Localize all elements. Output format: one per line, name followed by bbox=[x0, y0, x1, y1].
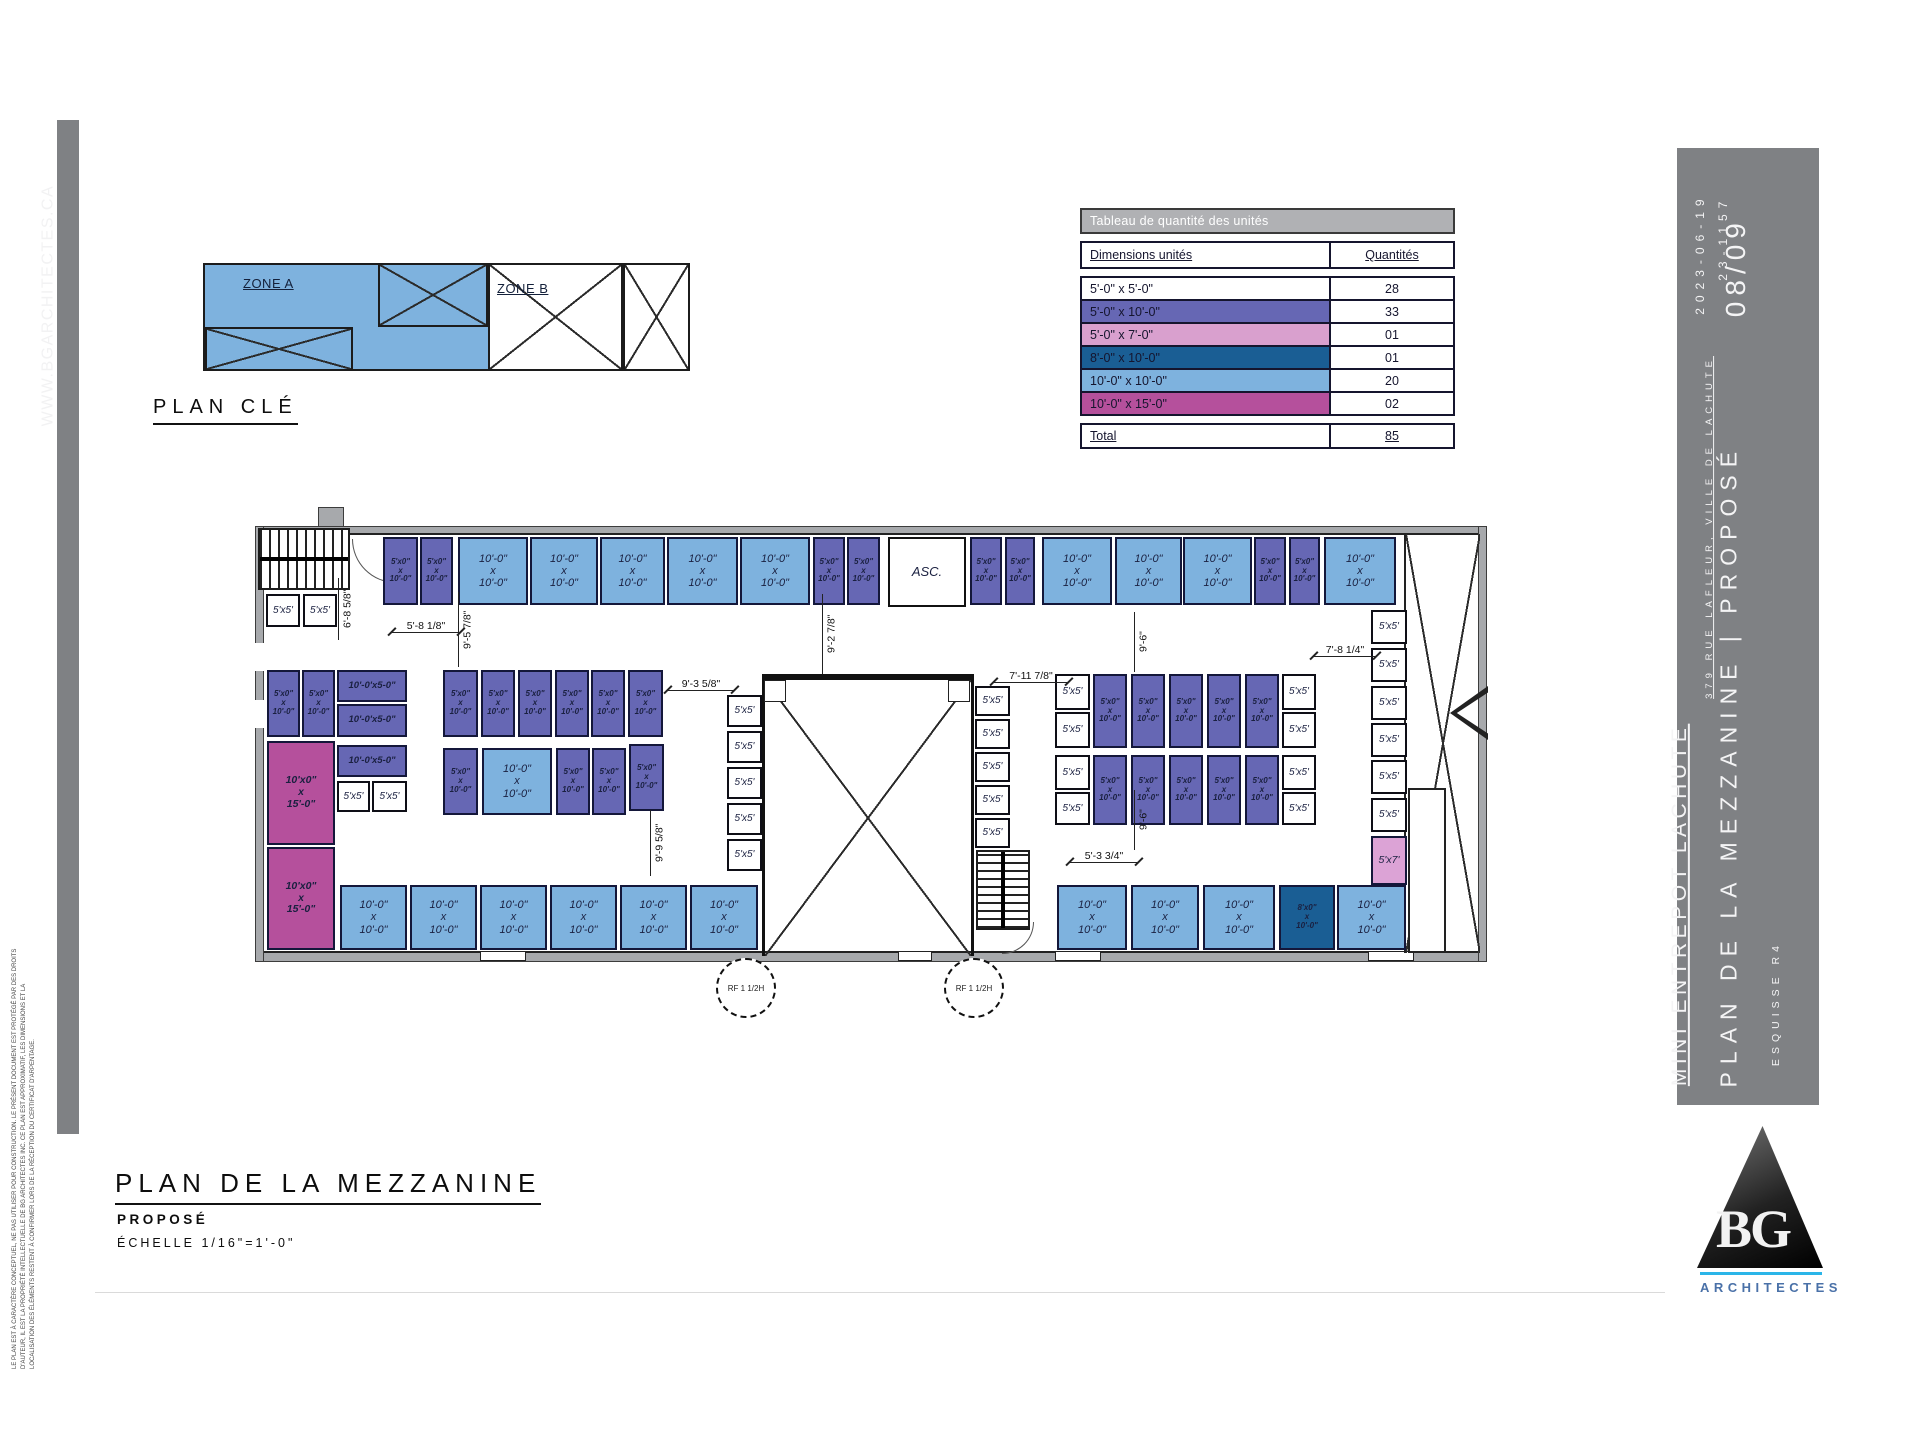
unit-5x5: 5'x5' bbox=[727, 695, 762, 727]
shaft-crossed-box bbox=[1408, 788, 1446, 953]
unit-10x10: 10'-0"x10'-0" bbox=[1183, 537, 1252, 605]
keyplan-crossed-area bbox=[623, 263, 690, 371]
unit-5x10: 5'x0"x10'-0" bbox=[443, 748, 478, 815]
fire-rating-tag: RF 1 1/2H bbox=[944, 958, 1004, 1018]
unit-10x10: 10'-0"x10'-0" bbox=[340, 885, 407, 950]
unit-8x10: 8'x0"x10'-0" bbox=[1279, 885, 1335, 950]
logo-rule bbox=[1700, 1272, 1822, 1275]
unit-5x10: 5'x0"x10'-0" bbox=[1169, 755, 1203, 825]
unit-5x10: 5'x0"x10'-0" bbox=[591, 670, 625, 737]
unit-5x5: 5'x5' bbox=[1371, 723, 1407, 757]
elevator-room: ASC. bbox=[888, 537, 966, 607]
unit-5x10: 5'x0"x10'-0" bbox=[1289, 537, 1320, 605]
table-row: 10'-0" x 10'-0"20 bbox=[1081, 369, 1454, 392]
unit-5x10: 5'x0"x10'-0" bbox=[1207, 755, 1241, 825]
table-row: 5'-0" x 5'-0"28 bbox=[1081, 277, 1454, 300]
dimension-label: 9'-5 7/8" bbox=[458, 592, 476, 667]
keyplan-title: PLAN CLÉ bbox=[153, 396, 298, 425]
disclaimer-line: LOCALISATION DES ÉLÉMENTS RESTENT À CONF… bbox=[29, 949, 38, 1369]
open-void-crossed-zone bbox=[762, 674, 974, 956]
sheet-title: PLAN DE LA MEZZANINE | PROPOSÉ bbox=[1716, 444, 1742, 1088]
copyright-disclaimer: LE PLAN EST À CARACTÈRE CONCEPTUEL, NE P… bbox=[11, 949, 38, 1369]
unit-5x10: 5'x0"x10'-0" bbox=[629, 744, 664, 811]
unit-10x10: 10'-0"x10'-0" bbox=[480, 885, 547, 950]
dimension-label: 5'-8 1/8" bbox=[392, 616, 460, 633]
unit-5x5: 5'x5' bbox=[1055, 755, 1090, 790]
unit-5x10: 5'x0"x10'-0" bbox=[556, 748, 590, 815]
table-row: 10'-0" x 15'-0"02 bbox=[1081, 392, 1454, 415]
unit-5x10: 10'-0'x5-0" bbox=[337, 704, 407, 737]
unit-5x10: 5'x0"x10'-0" bbox=[383, 537, 418, 605]
staircase-center bbox=[976, 850, 1030, 930]
table-total: Total 85 bbox=[1080, 423, 1455, 449]
door-opening bbox=[254, 643, 265, 671]
wall-top bbox=[255, 526, 1487, 535]
unit-5x10: 10'-0'x5-0" bbox=[337, 745, 407, 777]
unit-5x5: 5'x5' bbox=[1282, 674, 1316, 710]
column-crossed-box bbox=[948, 680, 970, 702]
unit-5x10: 5'x0"x10'-0" bbox=[1131, 674, 1165, 748]
zone-b-label: ZONE B bbox=[497, 281, 548, 296]
column-crossed-box bbox=[764, 680, 786, 702]
table-rows: 5'-0" x 5'-0"285'-0" x 10'-0"335'-0" x 7… bbox=[1080, 276, 1455, 416]
unit-5x5: 5'x5' bbox=[266, 594, 300, 627]
unit-5x5: 5'x5' bbox=[1055, 712, 1090, 748]
project-address: 379 RUE LAFLEUR, VILLE DE LACHUTE bbox=[1705, 356, 1716, 699]
unit-5x5: 5'x5' bbox=[975, 752, 1010, 782]
total-label: Total bbox=[1090, 429, 1116, 443]
unit-5x5: 5'x5' bbox=[1282, 755, 1316, 790]
unit-10x10: 10'-0"x10'-0" bbox=[620, 885, 687, 950]
unit-5x5: 5'x5' bbox=[727, 767, 762, 799]
unit-5x5: 5'x5' bbox=[372, 781, 407, 812]
unit-10x10: 10'-0"x10'-0" bbox=[1115, 537, 1182, 605]
project-name: MINI ENTREPOT LACHUTE bbox=[1668, 724, 1692, 1086]
unit-5x10: 5'x0"x10'-0" bbox=[1245, 674, 1279, 748]
dimension-label: 7'-8 1/4" bbox=[1314, 640, 1376, 657]
wall-left bbox=[255, 526, 264, 962]
issue-date: 2023-06-19 bbox=[1694, 193, 1708, 314]
unit-5x10: 10'-0'x5-0" bbox=[337, 670, 407, 702]
unit-5x5: 5'x5' bbox=[1282, 792, 1316, 825]
unit-5x5: 5'x5' bbox=[975, 686, 1010, 716]
disclaimer-line: D'AUTEUR, IL EST LA PROPRIÉTÉ INTELLECTU… bbox=[20, 949, 29, 1369]
unit-5x10: 5'x0"x10'-0" bbox=[555, 670, 589, 737]
unit-5x10: 5'x0"x10'-0" bbox=[443, 670, 478, 737]
left-sidebar-strip bbox=[57, 120, 79, 1134]
unit-10x10: 10'-0"x10'-0" bbox=[1337, 885, 1406, 950]
unit-10x10: 10'-0"x10'-0" bbox=[1042, 537, 1112, 605]
unit-5x10: 5'x0"x10'-0" bbox=[1245, 755, 1279, 825]
unit-5x10: 5'x0"x10'-0" bbox=[518, 670, 552, 737]
website-url: WWW.BGARCHITECTES.CA bbox=[40, 185, 58, 427]
unit-5x10: 5'x0"x10'-0" bbox=[420, 537, 453, 605]
unit-5x5: 5'x5' bbox=[727, 839, 762, 871]
total-value: 85 bbox=[1385, 429, 1399, 443]
unit-10x10: 10'-0"x10'-0" bbox=[1324, 537, 1396, 605]
unit-5x10: 5'x0"x10'-0" bbox=[1093, 674, 1127, 748]
unit-10x10: 10'-0"x10'-0" bbox=[690, 885, 758, 950]
sheet-title-text: PLAN DE LA MEZZANINE bbox=[1716, 656, 1742, 1087]
unit-10x10: 10'-0"x10'-0" bbox=[600, 537, 665, 605]
keyplan-crossed-area bbox=[488, 263, 623, 371]
logo-initials: BG bbox=[1716, 1198, 1790, 1260]
unit-10x10: 10'-0"x10'-0" bbox=[530, 537, 598, 605]
unit-5x10: 5'x0"x10'-0" bbox=[267, 670, 300, 737]
column-header-quantities: Quantités bbox=[1365, 248, 1419, 262]
unit-5x10: 5'x0"x10'-0" bbox=[628, 670, 663, 737]
keyplan-crossed-area bbox=[378, 263, 488, 327]
drawing-title: PLAN DE LA MEZZANINE bbox=[115, 1168, 541, 1205]
unit-10x10: 10'-0"x10'-0" bbox=[740, 537, 810, 605]
unit-5x5: 5'x5' bbox=[1371, 798, 1407, 832]
separator: | bbox=[1716, 628, 1742, 642]
door-arc bbox=[1002, 922, 1034, 954]
door-opening bbox=[480, 951, 526, 961]
unit-5x5: 5'x5' bbox=[727, 731, 762, 763]
drawing-scale: ÉCHELLE 1/16"=1'-0" bbox=[117, 1236, 295, 1250]
unit-5x10: 5'x0"x10'-0" bbox=[302, 670, 335, 737]
unit-10x10: 10'-0"x10'-0" bbox=[410, 885, 477, 950]
dimension-label: 9'-3 5/8" bbox=[668, 674, 734, 691]
unit-5x5: 5'x5' bbox=[1055, 792, 1090, 825]
unit-10x10: 10'-0"x10'-0" bbox=[1203, 885, 1275, 950]
door-opening bbox=[254, 700, 265, 728]
table-row: 8'-0" x 10'-0"01 bbox=[1081, 346, 1454, 369]
staircase-northwest bbox=[258, 528, 350, 590]
wall-stub bbox=[318, 507, 344, 527]
unit-5x5: 5'x5' bbox=[1371, 686, 1407, 720]
door-opening bbox=[1055, 951, 1101, 961]
dimension-label: 7'-11 7/8" bbox=[994, 666, 1068, 683]
unit-5x10: 5'x0"x10'-0" bbox=[1005, 537, 1035, 605]
unit-5x10: 5'x0"x10'-0" bbox=[1169, 674, 1203, 748]
unit-5x10: 5'x0"x10'-0" bbox=[847, 537, 880, 605]
keyplan-crossed-area bbox=[205, 327, 353, 371]
unit-5x10: 5'x0"x10'-0" bbox=[1254, 537, 1286, 605]
table-column-headers: Dimensions unités Quantités bbox=[1080, 241, 1455, 269]
unit-5x10: 5'x0"x10'-0" bbox=[1093, 755, 1127, 825]
unit-10x10: 10'-0"x10'-0" bbox=[1057, 885, 1127, 950]
table-row: 5'-0" x 7'-0"01 bbox=[1081, 323, 1454, 346]
unit-5x5: 5'x5' bbox=[975, 719, 1010, 749]
unit-5x10: 5'x0"x10'-0" bbox=[592, 748, 626, 815]
column-header-dimensions: Dimensions unités bbox=[1090, 248, 1192, 262]
unit-5x7: 5'x7' bbox=[1371, 836, 1407, 885]
unit-5x5: 5'x5' bbox=[1282, 712, 1316, 748]
dimension-label: 6'-8 5/8" bbox=[338, 578, 356, 640]
unit-5x5: 5'x5' bbox=[1371, 760, 1407, 794]
dimension-label: 9'-6" bbox=[1134, 790, 1152, 850]
unit-5x10: 5'x0"x10'-0" bbox=[970, 537, 1002, 605]
unit-10x10: 10'-0"x10'-0" bbox=[1131, 885, 1199, 950]
disclaimer-line: LE PLAN EST À CARACTÈRE CONCEPTUEL, NE P… bbox=[11, 949, 20, 1369]
unit-5x5: 5'x5' bbox=[975, 818, 1010, 848]
fire-rating-tag: RF 1 1/2H bbox=[716, 958, 776, 1018]
dimension-label: 9'-6" bbox=[1134, 612, 1152, 672]
unit-10x10: 10'-0"x10'-0" bbox=[667, 537, 738, 605]
unit-10x15: 10'x0"x15'-0" bbox=[267, 741, 335, 845]
dimension-label: 5'-3 3/4" bbox=[1070, 846, 1138, 863]
unit-5x5: 5'x5' bbox=[303, 594, 337, 627]
drawing-status: PROPOSÉ bbox=[117, 1212, 208, 1227]
table-row: 5'-0" x 10'-0"33 bbox=[1081, 300, 1454, 323]
page-number: 08/09 bbox=[1720, 217, 1752, 317]
sheet-status: PROPOSÉ bbox=[1716, 444, 1742, 614]
table-title: Tableau de quantité des unités bbox=[1080, 208, 1455, 234]
unit-10x10: 10'-0"x10'-0" bbox=[550, 885, 617, 950]
dimension-label: 9'-2 7/8" bbox=[822, 594, 840, 674]
dimension-label: 9'-9 5/8" bbox=[650, 810, 668, 876]
unit-5x10: 5'x0"x10'-0" bbox=[481, 670, 515, 737]
unit-10x10: 10'-0"x10'-0" bbox=[482, 748, 552, 815]
sketch-revision: ESQUISSE R4 bbox=[1770, 941, 1782, 1066]
zone-a-label: ZONE A bbox=[243, 276, 294, 291]
unit-5x5: 5'x5' bbox=[727, 803, 762, 835]
unit-quantity-table: Tableau de quantité des unités Dimension… bbox=[1080, 208, 1455, 449]
logo-subtitle: ARCHITECTES bbox=[1700, 1280, 1826, 1295]
unit-10x15: 10'x0"x15'-0" bbox=[267, 847, 335, 950]
unit-5x5: 5'x5' bbox=[1371, 610, 1407, 644]
sheet-frame-line bbox=[95, 1292, 1665, 1293]
unit-5x5: 5'x5' bbox=[975, 785, 1010, 815]
unit-5x10: 5'x0"x10'-0" bbox=[1207, 674, 1241, 748]
unit-5x5: 5'x5' bbox=[337, 781, 370, 812]
